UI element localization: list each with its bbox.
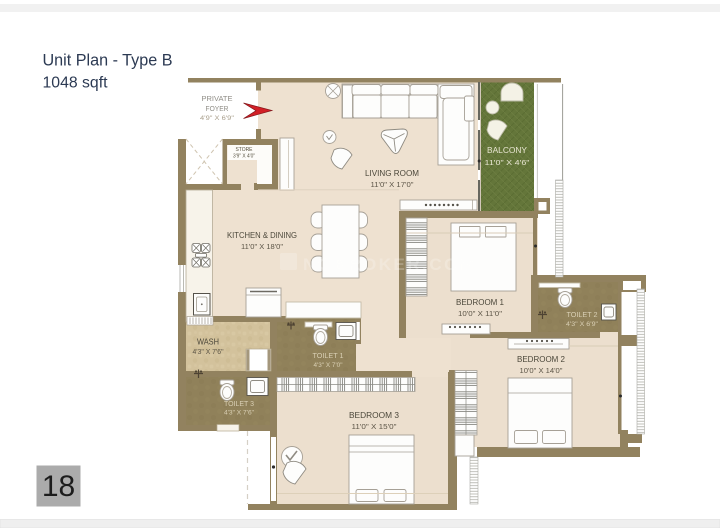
svg-text:PRIVATE: PRIVATE [202, 94, 233, 103]
svg-text:BEDROOM 2: BEDROOM 2 [517, 355, 566, 364]
svg-text:11'0" X 4'6": 11'0" X 4'6" [485, 158, 531, 167]
svg-text:10'0" X 14'0": 10'0" X 14'0" [520, 366, 563, 375]
svg-text:Unit Plan - Type B: Unit Plan - Type B [43, 52, 173, 70]
svg-text:4'3" X 7'0": 4'3" X 7'0" [314, 362, 344, 369]
svg-text:TOILET 2: TOILET 2 [567, 310, 598, 319]
svg-text:10'0" X 11'0": 10'0" X 11'0" [458, 309, 502, 318]
svg-text:NOBROKER.COM: NOBROKER.COM [303, 255, 477, 274]
svg-text:FOYER: FOYER [206, 104, 229, 113]
svg-text:18: 18 [42, 470, 75, 503]
svg-text:4'9" X 6'9": 4'9" X 6'9" [200, 115, 235, 122]
svg-text:BEDROOM 3: BEDROOM 3 [349, 411, 400, 420]
svg-text:WASH: WASH [197, 338, 219, 347]
svg-text:11'0" X 15'0": 11'0" X 15'0" [352, 422, 397, 431]
svg-text:3'9" X 4'0": 3'9" X 4'0" [233, 154, 255, 160]
svg-text:BALCONY: BALCONY [487, 146, 528, 155]
svg-text:BEDROOM 1: BEDROOM 1 [456, 298, 505, 307]
svg-text:TOILET 1: TOILET 1 [313, 351, 344, 360]
svg-text:LIVING ROOM: LIVING ROOM [365, 169, 419, 178]
svg-text:STORE: STORE [236, 147, 253, 153]
svg-text:4'3" X 6'9": 4'3" X 6'9" [566, 321, 599, 328]
svg-text:11'0" X 18'0": 11'0" X 18'0" [241, 242, 283, 251]
svg-text:1048 sqft: 1048 sqft [43, 75, 109, 92]
svg-text:KITCHEN & DINING: KITCHEN & DINING [227, 231, 297, 240]
svg-text:TOILET 3: TOILET 3 [224, 399, 254, 408]
svg-text:4'3" X 7'6": 4'3" X 7'6" [224, 410, 255, 417]
svg-text:4'3" X 7'6": 4'3" X 7'6" [193, 347, 224, 356]
svg-text:11'0" X 17'0": 11'0" X 17'0" [371, 180, 414, 189]
